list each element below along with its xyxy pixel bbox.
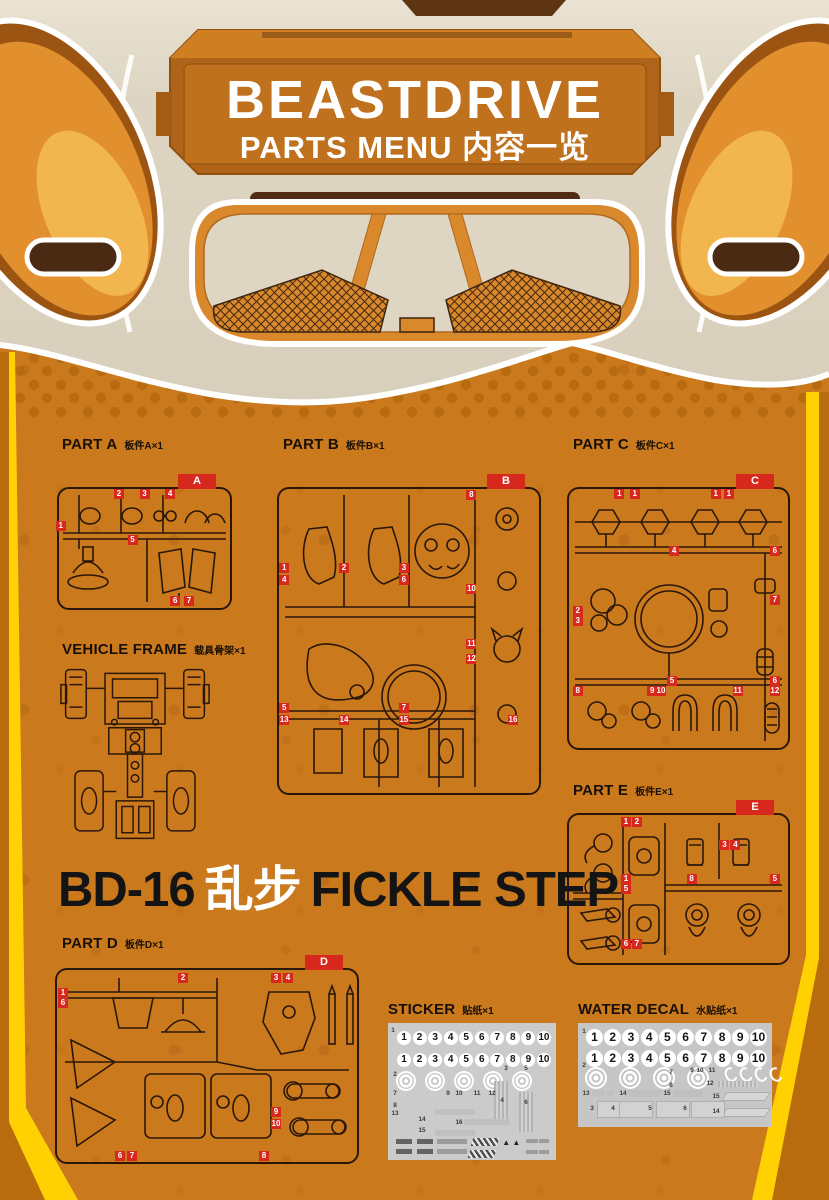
decal-index-number: 2 — [582, 1061, 586, 1068]
decal-index-number: 13 — [582, 1089, 589, 1096]
sticker-index-number: 9 — [447, 1089, 451, 1096]
part-number-tag: 4 — [669, 546, 679, 556]
part-number-tag: 8 — [573, 686, 583, 696]
decal-index-number: 15 — [712, 1092, 719, 1099]
sprue-c: C 11114672356891011 — [567, 487, 790, 750]
sticker-index-number: 15 — [418, 1126, 425, 1133]
part-number-tag: 16 — [508, 715, 518, 725]
part-number-tag: 1 — [614, 489, 624, 499]
section-label-sticker: STICKER贴纸×1 — [388, 1001, 494, 1019]
part-number-tag: 6 — [399, 575, 409, 585]
decal-index-number: 6 — [683, 1105, 687, 1112]
part-number-tag: 8 — [466, 490, 476, 500]
part-number-tag: 1 — [621, 817, 631, 827]
part-number-tag: 9 — [271, 1107, 281, 1117]
decal-indices: 1279101181213141515143456 — [578, 1023, 772, 1127]
decal-index-number: 14 — [619, 1089, 626, 1096]
part-number-tag: 2 — [339, 563, 349, 573]
part-number-tag: 5 — [621, 884, 631, 894]
section-label-part-e: PART E板件E×1 — [573, 782, 673, 800]
sprue-a-tab: A — [178, 474, 216, 489]
sticker-index-number: 13 — [391, 1110, 398, 1117]
part-number-tag: 4 — [279, 575, 289, 585]
sprue-a: A 2341567 — [57, 487, 232, 610]
decal-index-number: 9 — [691, 1066, 695, 1073]
part-number-tag: 3 — [271, 973, 281, 983]
part-number-tag: 1 — [630, 489, 640, 499]
sprue-a-tags: 2341567 — [59, 489, 230, 608]
water-decal-sheet: 12345678910 12345678910 1279101181213141… — [578, 1023, 772, 1127]
decal-index-number: 12 — [706, 1080, 713, 1087]
part-number-tag: 5 — [667, 676, 677, 686]
decal-index-number: 3 — [590, 1105, 594, 1112]
section-label-water-decal: WATER DECAL水贴纸×1 — [578, 1001, 738, 1019]
decal-index-number: 7 — [669, 1068, 673, 1075]
product-model: BD-16 — [58, 863, 195, 917]
part-number-tag: 7 — [184, 596, 194, 606]
section-label-part-b: PART B板件B×1 — [283, 436, 385, 454]
part-number-tag: 6 — [115, 1151, 125, 1161]
part-number-tag: 4 — [283, 973, 293, 983]
decal-index-number: 11 — [708, 1066, 715, 1073]
part-number-tag: 8 — [259, 1151, 269, 1161]
part-a-subtitle: 板件A×1 — [124, 441, 163, 452]
part-number-tag: 6 — [621, 939, 631, 949]
part-number-tag: 10 — [656, 686, 666, 696]
sticker-index-number: 1 — [391, 1026, 395, 1033]
part-number-tag: 1 — [279, 563, 289, 573]
section-label-part-a: PART A板件A×1 — [62, 436, 163, 454]
decal-index-number: 14 — [712, 1108, 719, 1115]
part-c-title: PART C — [573, 436, 629, 453]
section-label-vehicle-frame: VEHICLE FRAME载具骨架×1 — [62, 641, 246, 659]
part-number-tag: 1 — [58, 988, 68, 998]
part-number-tag: 12 — [770, 686, 780, 696]
part-number-tag: 11 — [733, 686, 743, 696]
decal-index-number: 10 — [697, 1066, 704, 1073]
part-number-tag: 1 — [621, 874, 631, 884]
part-e-title: PART E — [573, 782, 628, 799]
decal-index-number: 4 — [611, 1105, 615, 1112]
part-number-tag: 3 — [573, 616, 583, 626]
part-b-title: PART B — [283, 436, 339, 453]
part-number-tag: 5 — [128, 535, 138, 545]
part-d-subtitle: 板件D×1 — [125, 940, 164, 951]
part-number-tag: 7 — [399, 703, 409, 713]
part-number-tag: 7 — [770, 595, 780, 605]
part-number-tag: 2 — [178, 973, 188, 983]
part-number-tag: 6 — [170, 596, 180, 606]
parts-content: PART A板件A×1 A 2341567 PART B板件B×1 B — [0, 0, 829, 1200]
part-number-tag: 6 — [770, 676, 780, 686]
section-label-part-c: PART C板件C×1 — [573, 436, 675, 454]
part-number-tag: 6 — [770, 546, 780, 556]
part-number-tag: 13 — [279, 715, 289, 725]
part-number-tag: 11 — [466, 639, 476, 649]
sticker-title: STICKER — [388, 1001, 455, 1018]
sprue-b-tab: B — [487, 474, 525, 489]
decal-index-number: 1 — [582, 1028, 586, 1035]
part-number-tag: 3 — [719, 840, 729, 850]
decal-index-number: 15 — [664, 1089, 671, 1096]
sticker-index-number: 12 — [489, 1089, 496, 1096]
vehicle-frame-subtitle: 载具骨架×1 — [194, 646, 245, 657]
part-number-tag: 1 — [724, 489, 734, 499]
part-b-subtitle: 板件B×1 — [346, 441, 385, 452]
part-number-tag: 7 — [127, 1151, 137, 1161]
part-number-tag: 2 — [632, 817, 642, 827]
water-decal-title: WATER DECAL — [578, 1001, 689, 1018]
part-number-tag: 6 — [58, 998, 68, 1008]
part-number-tag: 10 — [466, 584, 476, 594]
part-c-subtitle: 板件C×1 — [636, 441, 675, 452]
section-label-part-d: PART D板件D×1 — [62, 935, 164, 953]
part-number-tag: 2 — [573, 606, 583, 616]
part-number-tag: 3 — [140, 489, 150, 499]
vehicle-frame-drawing — [60, 658, 210, 850]
part-number-tag: 8 — [687, 874, 697, 884]
sticker-index-number: 11 — [474, 1089, 481, 1096]
sticker-subtitle: 贴纸×1 — [462, 1006, 493, 1017]
sprue-b: B 81234610111257131 — [277, 487, 541, 795]
sprue-c-tags: 1111467235689101112 — [569, 489, 788, 748]
part-number-tag: 5 — [279, 703, 289, 713]
part-e-subtitle: 板件E×1 — [635, 787, 673, 798]
decal-index-number: 8 — [669, 1082, 673, 1089]
parts-menu-page: BEASTDRIVE PARTS MENU 内容一览 PART A板件A×1 A — [0, 0, 829, 1200]
sticker-index-number: 7 — [393, 1089, 397, 1096]
sprue-c-tab: C — [736, 474, 774, 489]
sprue-d-tags: 16234910678 — [57, 970, 357, 1162]
part-number-tag: 2 — [114, 489, 124, 499]
sprue-b-tags: 8123461011125713141516 — [279, 489, 539, 793]
water-decal-subtitle: 水贴纸×1 — [696, 1006, 737, 1017]
sticker-index-number: 16 — [455, 1118, 462, 1125]
part-a-title: PART A — [62, 436, 117, 453]
sprue-d-tab: D — [305, 955, 343, 970]
part-number-tag: 12 — [466, 654, 476, 664]
product-cn-name: 乱步 — [205, 863, 301, 917]
part-number-tag: 1 — [56, 521, 66, 531]
part-number-tag: 15 — [399, 715, 409, 725]
part-number-tag: 1 — [711, 489, 721, 499]
sprue-d: D 16234910678 — [55, 968, 359, 1164]
sticker-index-number: 3 — [504, 1065, 508, 1072]
sticker-index-number: 4 — [500, 1096, 504, 1103]
sprue-e-tab: E — [736, 800, 774, 815]
part-d-title: PART D — [62, 935, 118, 952]
sticker-index-number: 8 — [393, 1102, 397, 1109]
product-title: BD-16乱步FICKLE STEP — [58, 850, 618, 921]
product-en-name: FICKLE STEP — [311, 863, 619, 917]
sticker-index-number: 6 — [524, 1099, 528, 1106]
vehicle-frame-title: VEHICLE FRAME — [62, 641, 187, 658]
decal-index-number: 5 — [648, 1105, 652, 1112]
sticker-index-number: 5 — [524, 1065, 528, 1072]
part-number-tag: 4 — [165, 489, 175, 499]
part-number-tag: 4 — [730, 840, 740, 850]
sticker-index-number: 14 — [418, 1115, 425, 1122]
part-number-tag: 5 — [770, 874, 780, 884]
part-number-tag: 10 — [271, 1119, 281, 1129]
part-number-tag: 7 — [632, 939, 642, 949]
sticker-sheet: 12345678910 12345678910 ▲ ▲ 127910 — [388, 1023, 556, 1160]
sticker-indices: 12791011128131415163546 — [388, 1023, 556, 1160]
sticker-index-number: 2 — [393, 1070, 397, 1077]
part-number-tag: 3 — [399, 563, 409, 573]
sticker-index-number: 10 — [455, 1089, 462, 1096]
part-number-tag: 14 — [339, 715, 349, 725]
